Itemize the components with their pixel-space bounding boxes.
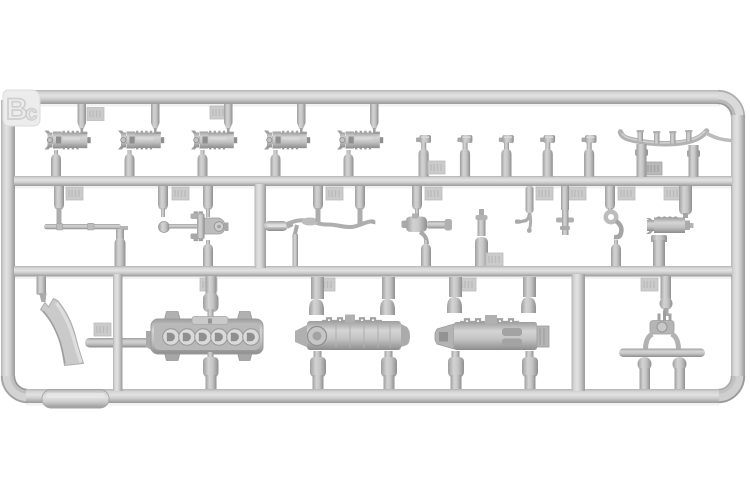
svg-text:c: c bbox=[26, 102, 38, 125]
svg-text:B: B bbox=[6, 93, 28, 126]
